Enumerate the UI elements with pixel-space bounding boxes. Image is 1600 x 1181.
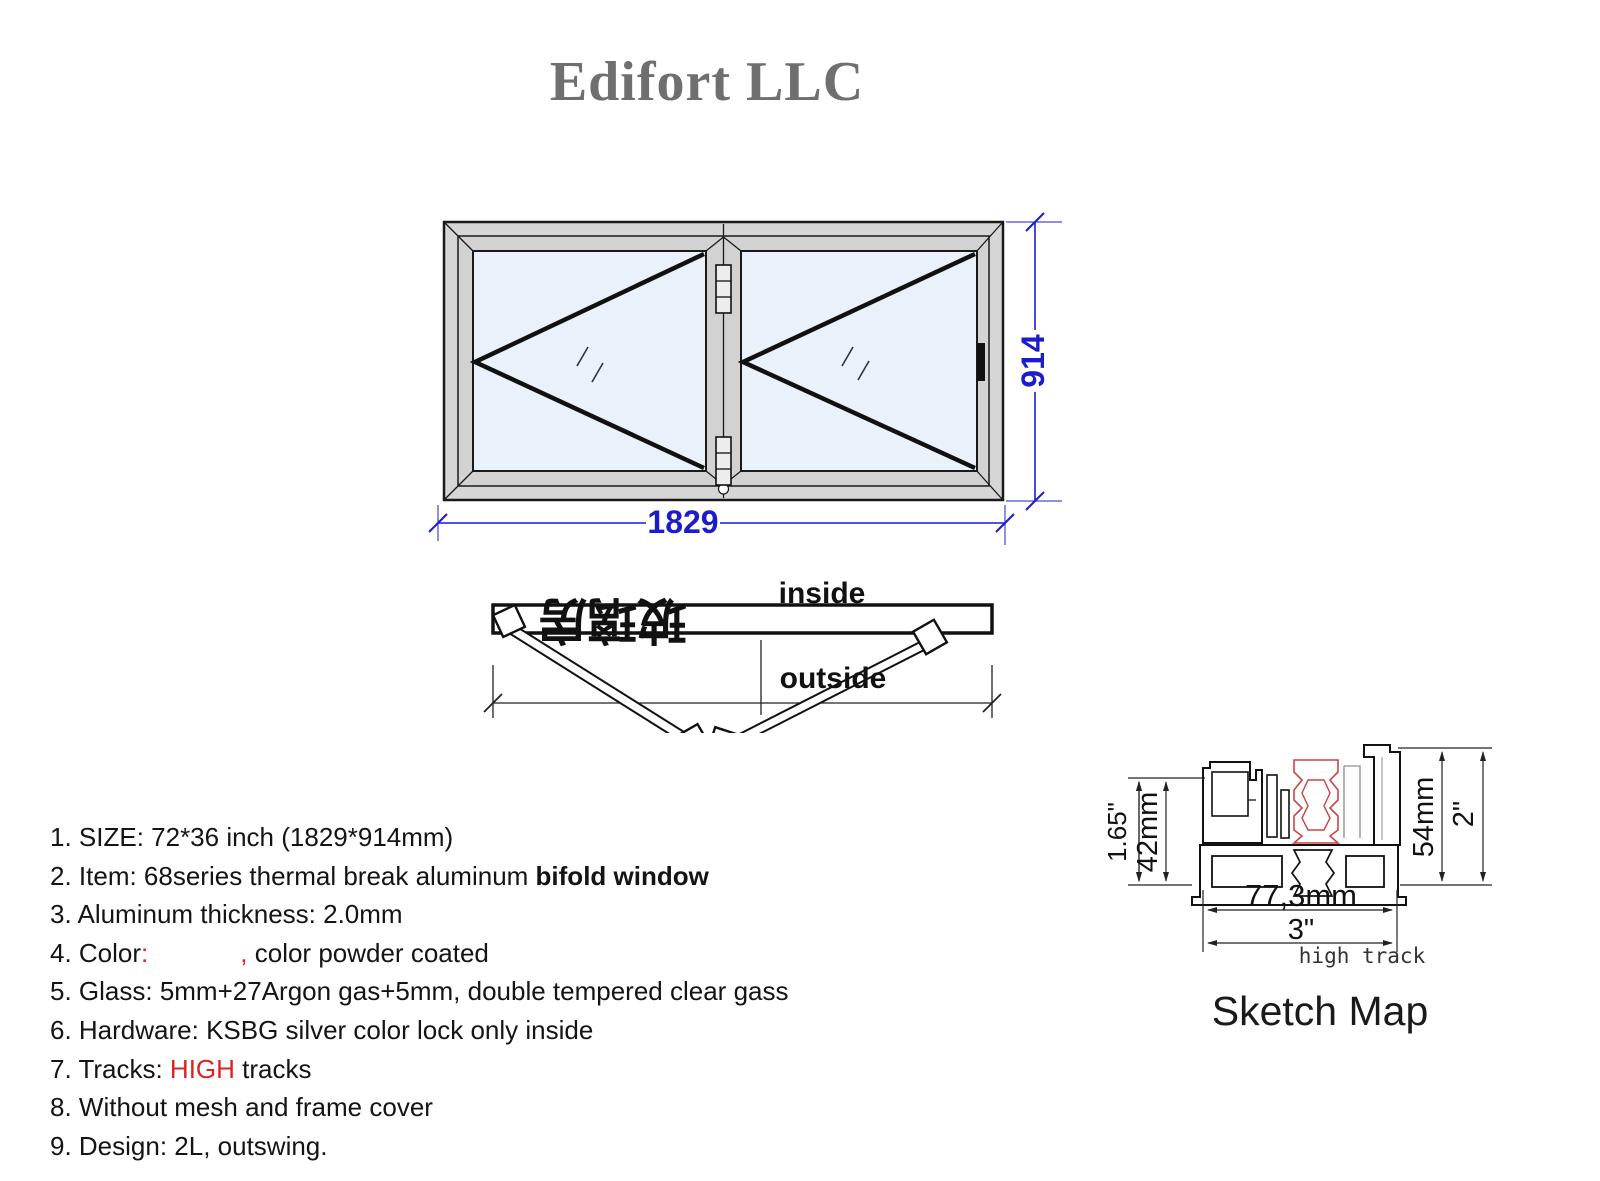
- dim-right-mm: 54mm: [1408, 777, 1440, 858]
- sketch-map-caption: Sketch Map: [1120, 988, 1520, 1035]
- cjk-watermark-text: 玻璃房: [537, 592, 687, 648]
- inside-label: inside: [779, 577, 866, 610]
- spec-line-mesh: 8. Without mesh and frame cover: [50, 1088, 789, 1127]
- dim-left-mm: 42mm: [1132, 792, 1164, 873]
- window-elevation-drawing: 914 1829: [410, 190, 1080, 550]
- width-dimension-label: 1829: [647, 504, 718, 540]
- spec-line-thickness: 3. Aluminum thickness: 2.0mm: [50, 895, 789, 934]
- dim-bottom-mm: 77,3mm: [1245, 878, 1357, 913]
- spec-line-hardware: 6. Hardware: KSBG silver color lock only…: [50, 1011, 789, 1050]
- track-cross-section-drawing: 1.65" 42mm 54mm 2" 77,3mm 3" high track: [1090, 700, 1520, 985]
- company-title: Edifort LLC: [407, 50, 1007, 114]
- spec-line-color: 4. Color:, color powder coated: [50, 934, 789, 973]
- height-dimension-label: 914: [1015, 334, 1051, 388]
- outside-label: outside: [780, 662, 887, 695]
- dim-left-inch: 1.65": [1102, 802, 1132, 862]
- spec-line-design: 9. Design: 2L, outswing.: [50, 1127, 789, 1166]
- glazing-bead: [1344, 766, 1360, 838]
- spec-line-tracks: 7. Tracks: HIGH tracks: [50, 1050, 789, 1089]
- folding-plan-diagram: inside outside 玻璃房: [455, 548, 1045, 733]
- spec-list: 1. SIZE: 72*36 inch (1829*914mm) 2. Item…: [50, 818, 789, 1165]
- spec-line-size: 1. SIZE: 72*36 inch (1829*914mm): [50, 818, 789, 857]
- dim-bottom-inch: 3": [1288, 914, 1314, 946]
- window-handle: [977, 343, 985, 381]
- hinge-bottom: [716, 437, 731, 485]
- spec-line-item: 2. Item: 68series thermal break aluminum…: [50, 857, 789, 896]
- spec-line-glass: 5. Glass: 5mm+27Argon gas+5mm, double te…: [50, 972, 789, 1011]
- high-track-label: high track: [1299, 944, 1426, 968]
- left-glass-pane: [473, 251, 706, 471]
- hinge-top: [716, 265, 731, 313]
- right-glass-pane: [741, 251, 977, 471]
- width-dimension: [429, 505, 1014, 545]
- spec-sheet-page: Edifort LLC: [0, 0, 1600, 1181]
- upper-thermal-break-red: [1294, 760, 1338, 843]
- dim-right-inch: 2": [1448, 801, 1480, 827]
